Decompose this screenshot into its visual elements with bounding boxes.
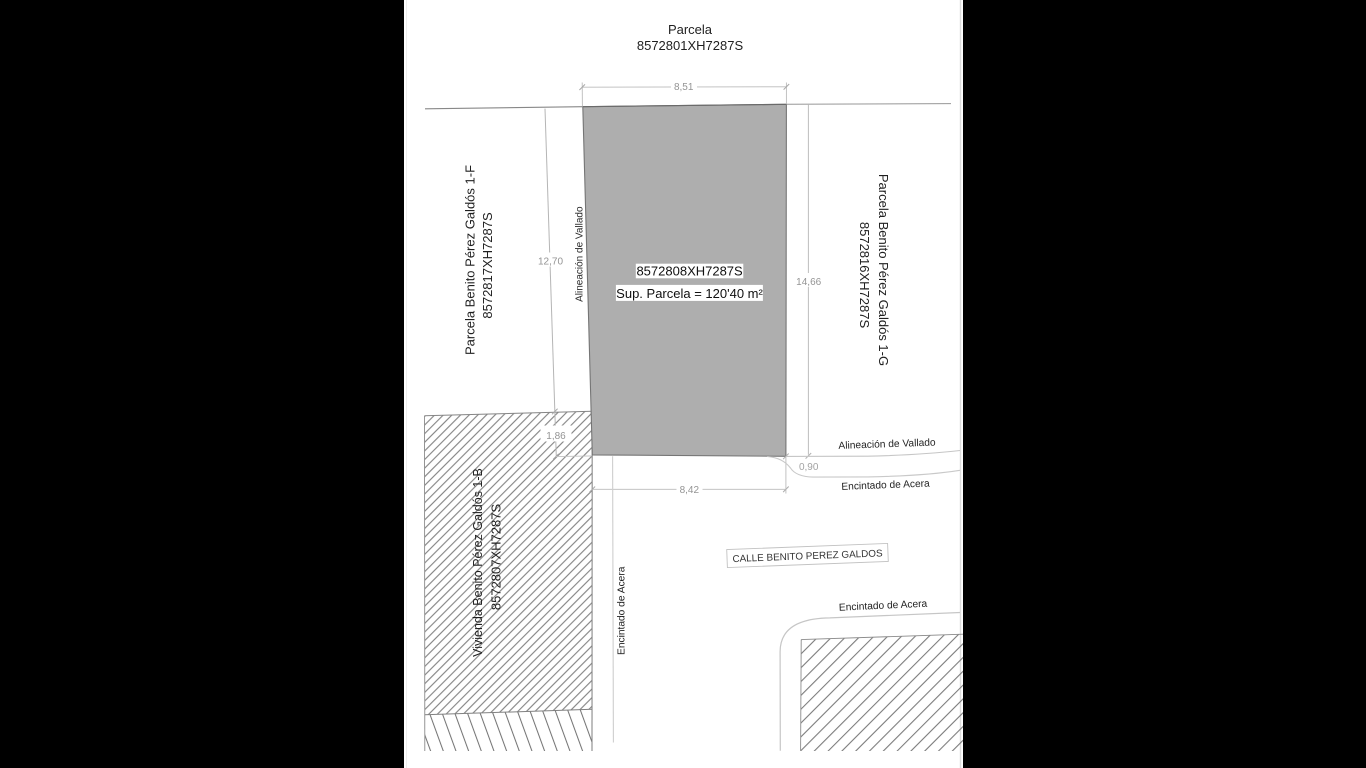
svg-text:1,86: 1,86 (546, 431, 566, 442)
svg-text:8572808XH7287S: 8572808XH7287S (636, 264, 743, 279)
svg-text:0,90: 0,90 (799, 462, 819, 473)
svg-text:Encintado de Acera: Encintado de Acera (617, 566, 628, 655)
svg-text:14,66: 14,66 (796, 277, 821, 288)
svg-text:8572817XH7287S: 8572817XH7287S (480, 212, 495, 319)
svg-text:Vivienda Benito Pérez Galdós 1: Vivienda Benito Pérez Galdós 1-B (471, 468, 485, 657)
svg-text:Sup. Parcela = 120'40 m²: Sup. Parcela = 120'40 m² (616, 286, 763, 301)
svg-text:Parcela: Parcela (668, 22, 713, 37)
svg-text:8,42: 8,42 (680, 485, 700, 496)
svg-text:Parcela Benito Pérez Galdós 1-: Parcela Benito Pérez Galdós 1-G (876, 174, 891, 366)
svg-text:8572801XH7287S: 8572801XH7287S (637, 38, 744, 53)
svg-text:8572807XH7287S: 8572807XH7287S (489, 504, 504, 611)
svg-text:8572816XH7287S: 8572816XH7287S (857, 222, 872, 329)
svg-text:Alineación de Vallado: Alineación de Vallado (575, 206, 586, 302)
svg-text:12,70: 12,70 (538, 256, 563, 267)
svg-text:Parcela Benito Pérez Galdós 1-: Parcela Benito Pérez Galdós 1-F (463, 165, 478, 355)
svg-text:8,51: 8,51 (674, 82, 694, 93)
